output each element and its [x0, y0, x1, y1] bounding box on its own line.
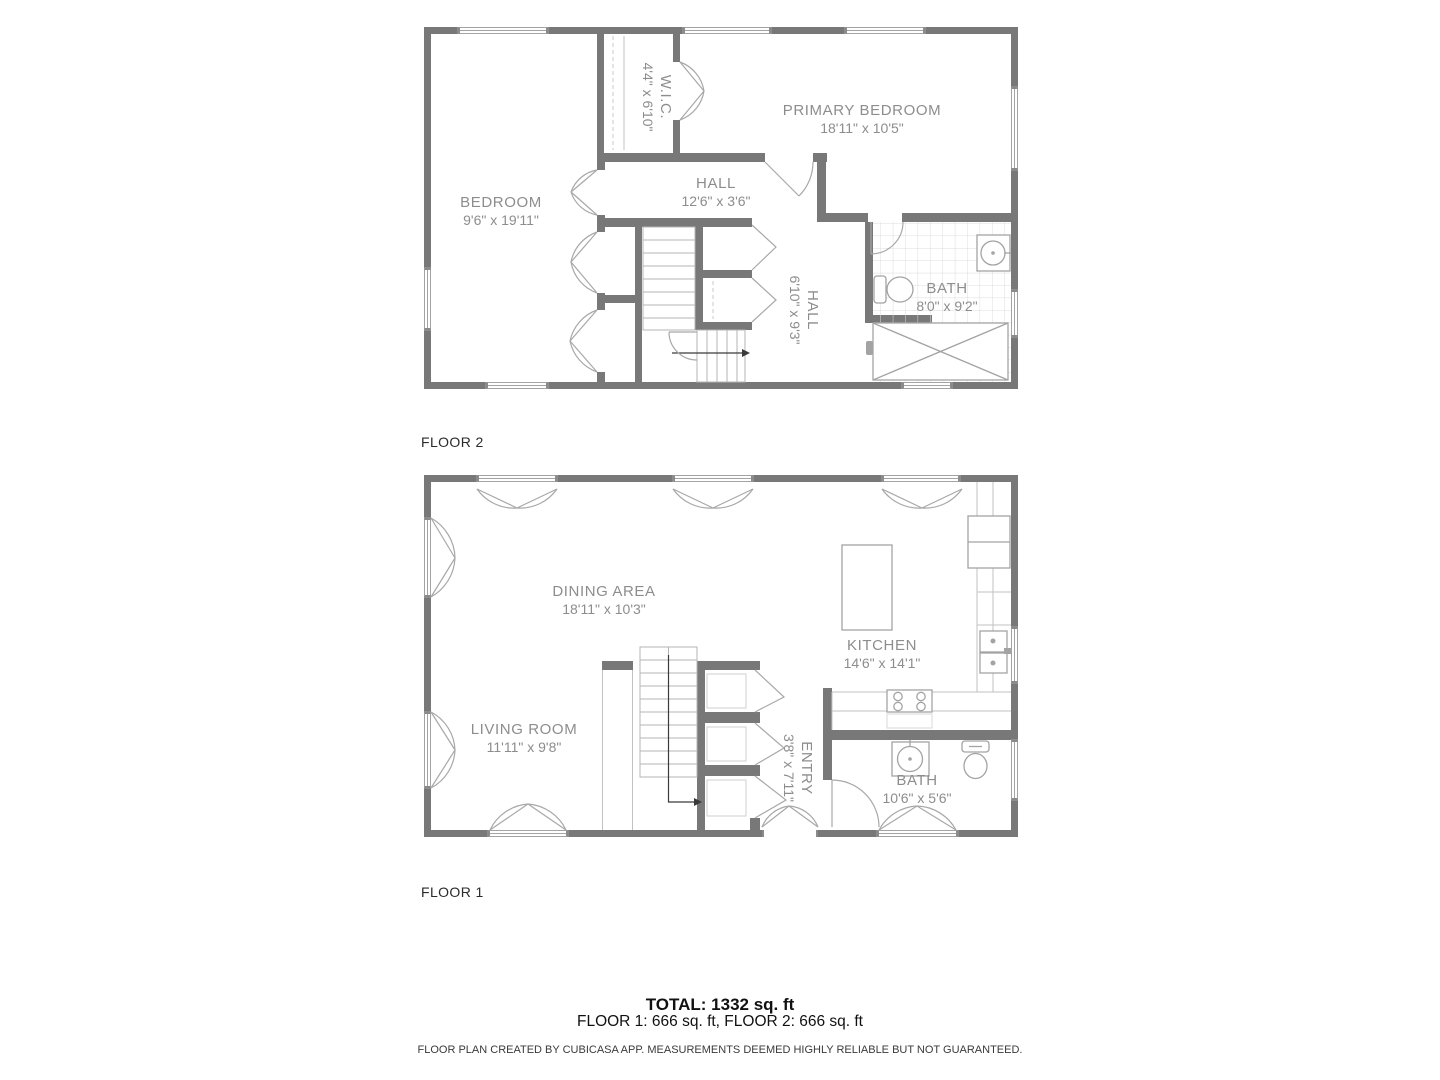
hall-closet-door	[752, 225, 776, 270]
wic-door	[680, 62, 704, 120]
floor-plan-drawing: W.I.C. 4'4" x 6'10" PRIMARY BEDROOM 18'1…	[0, 0, 1440, 1080]
floor-1-caption: FLOOR 1	[421, 884, 484, 900]
shower-valve-icon	[866, 341, 873, 355]
window	[673, 476, 753, 482]
bedroom-door	[571, 170, 597, 215]
svg-text:PRIMARY BEDROOM: PRIMARY BEDROOM	[783, 102, 941, 119]
svg-text:KITCHEN: KITCHEN	[847, 637, 917, 654]
svg-text:9'6" x 19'11": 9'6" x 19'11"	[463, 212, 539, 228]
sink	[892, 740, 929, 776]
hall-closet-door	[752, 278, 776, 322]
per-floor-area-text: FLOOR 1: 666 sq. ft, FLOOR 2: 666 sq. ft	[0, 1013, 1440, 1031]
stair-door	[669, 332, 697, 360]
closet-door	[571, 232, 597, 293]
window	[488, 831, 568, 837]
svg-text:4'4" x 6'10": 4'4" x 6'10"	[640, 63, 656, 132]
window	[1012, 627, 1018, 683]
casement-window-swing	[490, 804, 566, 830]
window	[425, 518, 431, 597]
svg-text:11'11" x 9'8": 11'11" x 9'8"	[487, 739, 562, 755]
svg-text:14'6" x 14'1": 14'6" x 14'1"	[844, 655, 921, 671]
window	[425, 712, 431, 788]
kitchen-island	[842, 545, 892, 630]
svg-text:HALL: HALL	[804, 290, 821, 330]
svg-text:BATH: BATH	[896, 772, 937, 789]
window	[683, 28, 771, 34]
floor-1-kitchen-fixtures	[842, 516, 1011, 728]
room-label-hall-lower: HALL 6'10" x 9'3"	[787, 276, 821, 345]
toilet	[962, 741, 989, 779]
arrowhead-icon	[742, 349, 750, 357]
svg-text:BATH: BATH	[926, 280, 967, 297]
window	[425, 268, 431, 330]
svg-text:ENTRY: ENTRY	[798, 741, 815, 795]
kitchen-sink	[980, 631, 1011, 673]
window	[477, 476, 557, 482]
window	[1012, 740, 1018, 800]
room-label-primary-bedroom: PRIMARY BEDROOM 18'11" x 10'5"	[783, 102, 941, 136]
svg-text:18'11" x 10'3": 18'11" x 10'3"	[562, 601, 646, 617]
svg-text:12'6" x 3'6": 12'6" x 3'6"	[682, 193, 751, 209]
bath-door	[832, 780, 879, 827]
svg-text:18'11" x 10'5": 18'11" x 10'5"	[820, 120, 904, 136]
closet-door	[755, 670, 784, 712]
shower	[866, 323, 1008, 380]
total-area-text: TOTAL: 1332 sq. ft	[0, 995, 1440, 1015]
window	[458, 28, 548, 34]
casement-window-swing	[882, 489, 962, 508]
window	[1012, 87, 1018, 170]
svg-text:10'6" x 5'6": 10'6" x 5'6"	[883, 790, 952, 806]
svg-text:3'8" x 7'11": 3'8" x 7'11"	[781, 734, 797, 802]
room-label-hall: HALL 12'6" x 3'6"	[682, 175, 751, 209]
room-label-entry: ENTRY 3'8" x 7'11"	[781, 734, 815, 802]
room-label-bedroom: BEDROOM 9'6" x 19'11"	[460, 194, 542, 228]
room-label-living-room: LIVING ROOM 11'11" x 9'8"	[471, 721, 578, 755]
disclaimer-text: FLOOR PLAN CREATED BY CUBICASA APP. MEAS…	[0, 1044, 1440, 1056]
entry-door-opening	[762, 830, 818, 837]
casement-window-swing	[477, 489, 557, 508]
window	[486, 383, 548, 389]
floor-plan-page: W.I.C. 4'4" x 6'10" PRIMARY BEDROOM 18'1…	[0, 0, 1440, 1080]
refrigerator	[968, 516, 1010, 568]
window	[845, 28, 925, 34]
room-label-kitchen: KITCHEN 14'6" x 14'1"	[844, 637, 921, 671]
closet-door	[755, 723, 784, 765]
svg-text:DINING AREA: DINING AREA	[552, 583, 655, 600]
svg-text:BEDROOM: BEDROOM	[460, 194, 542, 211]
casement-window-swing	[431, 518, 455, 597]
svg-text:LIVING ROOM: LIVING ROOM	[471, 721, 578, 738]
floor-2-plan: W.I.C. 4'4" x 6'10" PRIMARY BEDROOM 18'1…	[424, 27, 1018, 389]
sink	[977, 235, 1011, 271]
floor-1-stairs	[640, 647, 702, 806]
window	[902, 383, 952, 389]
room-label-wic: W.I.C. 4'4" x 6'10"	[640, 63, 674, 132]
casement-window-swing	[879, 806, 956, 830]
svg-text:W.I.C.: W.I.C.	[657, 75, 674, 119]
toilet	[874, 276, 913, 303]
casement-window-swing	[673, 489, 753, 508]
stove	[887, 690, 932, 728]
floor-2-caption: FLOOR 2	[421, 434, 484, 450]
closet-door	[570, 310, 597, 372]
room-label-bath: BATH 10'6" x 5'6"	[883, 772, 952, 806]
window	[1012, 290, 1018, 337]
room-label-dining-area: DINING AREA 18'11" x 10'3"	[552, 583, 655, 617]
svg-text:8'0" x 9'2": 8'0" x 9'2"	[916, 298, 977, 314]
casement-window-swing	[431, 712, 455, 788]
svg-text:HALL: HALL	[696, 175, 736, 192]
window	[882, 476, 960, 482]
primary-bedroom-door	[765, 162, 813, 196]
floor-1-closets	[707, 674, 746, 816]
svg-text:6'10" x 9'3": 6'10" x 9'3"	[787, 276, 803, 345]
window	[877, 831, 958, 837]
floor-1-plan: DINING AREA 18'11" x 10'3" KITCHEN 14'6"…	[424, 475, 1018, 837]
